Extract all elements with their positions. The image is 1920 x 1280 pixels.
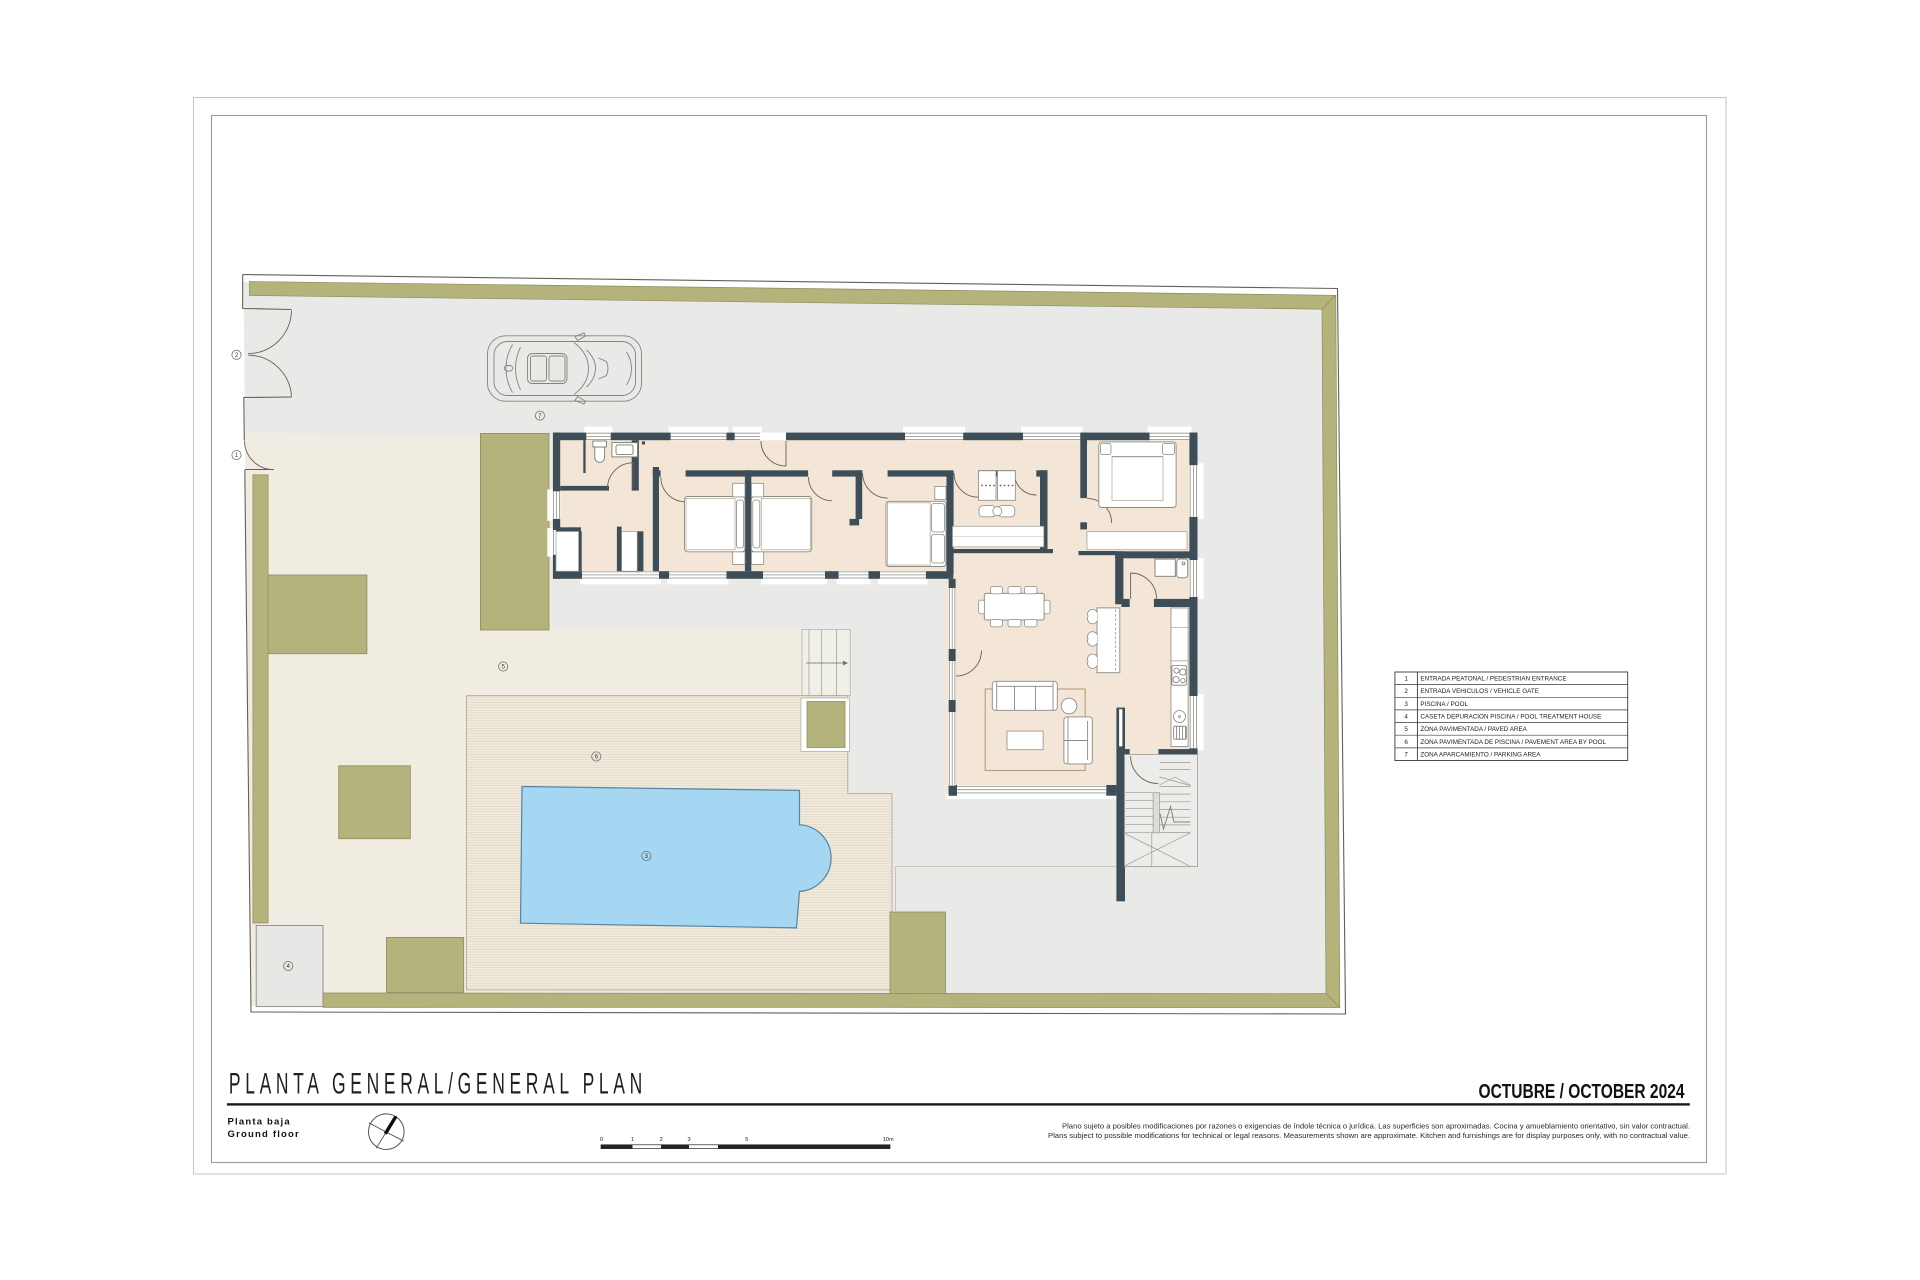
svg-text:2: 2 <box>1404 688 1408 695</box>
svg-text:5: 5 <box>501 664 505 671</box>
svg-text:ZONA APARCAMIENTO / PARKING AR: ZONA APARCAMIENTO / PARKING AREA <box>1420 752 1541 759</box>
svg-text:CASETA DEPURACION PISCINA / PO: CASETA DEPURACION PISCINA / POOL TREATME… <box>1420 714 1601 721</box>
svg-text:Plans subject to possible modi: Plans subject to possible modifications … <box>1048 1131 1690 1140</box>
svg-text:1: 1 <box>235 452 239 459</box>
svg-text:3: 3 <box>1404 701 1408 708</box>
svg-text:PISCINA / POOL: PISCINA / POOL <box>1420 701 1468 708</box>
svg-text:Ground floor: Ground floor <box>228 1129 300 1140</box>
svg-text:7: 7 <box>1404 752 1408 759</box>
svg-text:5: 5 <box>745 1137 748 1143</box>
svg-text:2: 2 <box>235 352 239 359</box>
svg-text:Plano sujeto a posibles modifi: Plano sujeto a posibles modificaciones p… <box>1062 1121 1690 1130</box>
svg-text:3: 3 <box>645 853 649 860</box>
svg-text:ENTRADA VEHICULOS / VEHICLE GA: ENTRADA VEHICULOS / VEHICLE GATE <box>1420 688 1539 695</box>
svg-text:6: 6 <box>1404 739 1408 746</box>
svg-text:OCTUBRE / OCTOBER 2024: OCTUBRE / OCTOBER 2024 <box>1479 1080 1685 1103</box>
svg-text:10m: 10m <box>883 1137 894 1143</box>
svg-text:6: 6 <box>595 754 599 761</box>
svg-text:ZONA PAVIMENTADA / PAVED AREA: ZONA PAVIMENTADA / PAVED AREA <box>1420 726 1527 733</box>
svg-text:2: 2 <box>660 1137 663 1143</box>
svg-text:7: 7 <box>538 413 542 420</box>
svg-text:ENTRADA PEATONAL / PEDESTRIAN: ENTRADA PEATONAL / PEDESTRIAN ENTRANCE <box>1420 676 1566 683</box>
svg-text:4: 4 <box>286 963 290 970</box>
svg-text:PLANTA GENERAL/GENERAL PLAN: PLANTA GENERAL/GENERAL PLAN <box>229 1068 647 1101</box>
svg-text:1: 1 <box>631 1137 634 1143</box>
svg-text:1: 1 <box>1404 676 1408 683</box>
svg-text:Planta baja: Planta baja <box>228 1117 291 1128</box>
svg-text:ZONA PAVIMENTADA DE PISCINA /: ZONA PAVIMENTADA DE PISCINA / PAVEMENT A… <box>1420 739 1606 746</box>
svg-text:4: 4 <box>1404 714 1408 721</box>
svg-text:0: 0 <box>600 1137 603 1143</box>
svg-text:5: 5 <box>1404 726 1408 733</box>
svg-text:3: 3 <box>687 1137 690 1143</box>
